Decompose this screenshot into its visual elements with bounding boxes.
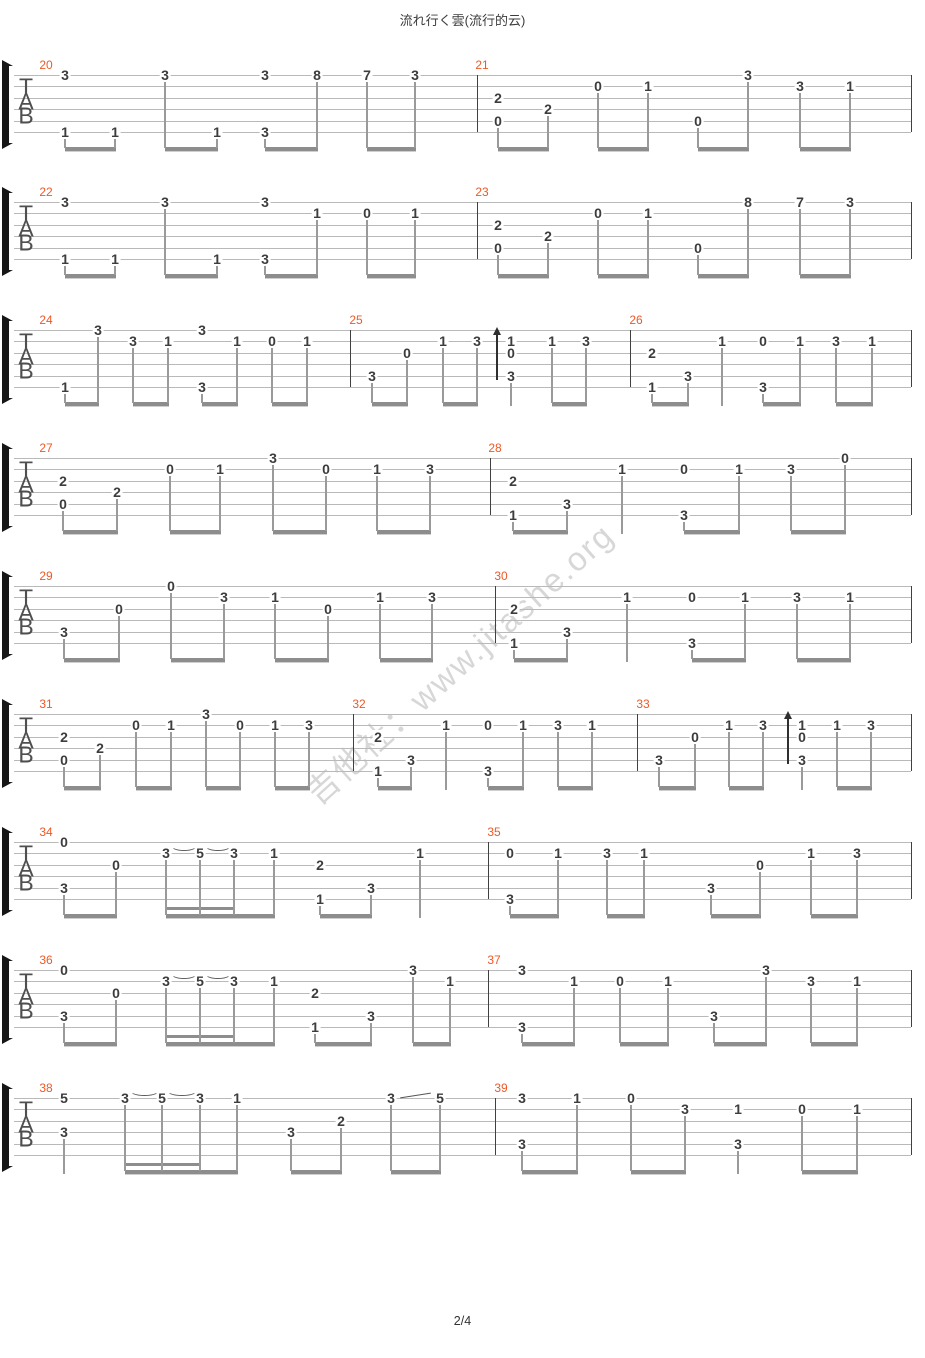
fret-number: 3 bbox=[792, 590, 803, 604]
staff-line bbox=[14, 620, 911, 621]
measure-number: 34 bbox=[39, 825, 52, 839]
fret-number: 1 bbox=[60, 125, 71, 139]
note-stem bbox=[219, 475, 220, 531]
note-stem bbox=[116, 498, 117, 531]
staff-line bbox=[14, 865, 911, 866]
beam bbox=[811, 1042, 859, 1047]
beam bbox=[714, 1042, 768, 1047]
fret-number: 3 bbox=[517, 1091, 528, 1105]
note-stem bbox=[236, 1104, 237, 1172]
strum-arrow-shaft bbox=[787, 718, 788, 764]
fret-number: 3 bbox=[852, 846, 863, 860]
fret-number: 0 bbox=[687, 590, 698, 604]
note-stem bbox=[626, 603, 627, 662]
fret-number: 3 bbox=[866, 718, 877, 732]
measure-number: 21 bbox=[475, 58, 488, 72]
fret-number: 1 bbox=[508, 508, 519, 522]
barline bbox=[911, 330, 912, 387]
note-stem bbox=[621, 475, 622, 534]
fret-number: 3 bbox=[366, 881, 377, 895]
fret-number: 3 bbox=[410, 68, 421, 82]
note-stem bbox=[199, 859, 200, 915]
barline bbox=[495, 586, 496, 643]
fret-number: 1 bbox=[60, 252, 71, 266]
staff-line bbox=[14, 236, 911, 237]
fret-number: 3 bbox=[425, 462, 436, 476]
fret-number: 1 bbox=[509, 636, 520, 650]
fret-number: 1 bbox=[663, 974, 674, 988]
beam bbox=[514, 658, 569, 663]
note-stem bbox=[199, 987, 200, 1043]
fret-number: 2 bbox=[543, 102, 554, 116]
fret-number: 1 bbox=[867, 334, 878, 348]
beam bbox=[265, 147, 319, 152]
fret-number: 3 bbox=[553, 718, 564, 732]
fret-number: 0 bbox=[131, 718, 142, 732]
note-stem bbox=[835, 347, 836, 403]
note-stem bbox=[744, 603, 745, 659]
fret-number: 3 bbox=[268, 451, 279, 465]
fret-number: 3 bbox=[229, 974, 240, 988]
note-stem bbox=[870, 731, 871, 787]
fret-number: 1 bbox=[415, 846, 426, 860]
barline bbox=[488, 970, 489, 1027]
fret-number: 3 bbox=[304, 718, 315, 732]
fret-number: 0 bbox=[505, 846, 516, 860]
measure-number: 20 bbox=[39, 58, 52, 72]
staff-line bbox=[14, 353, 911, 354]
fret-number: 1 bbox=[845, 79, 856, 93]
system-bracket bbox=[2, 66, 9, 143]
staff-line bbox=[14, 714, 911, 715]
fret-number: 3 bbox=[367, 369, 378, 383]
note-stem bbox=[115, 870, 116, 915]
fret-number: 3 bbox=[733, 1137, 744, 1151]
staff-line bbox=[14, 109, 911, 110]
note-stem bbox=[799, 92, 800, 148]
fret-number: 1 bbox=[212, 125, 223, 139]
beam bbox=[692, 658, 747, 663]
beam bbox=[64, 1042, 118, 1047]
measure-number: 27 bbox=[39, 441, 52, 455]
beam bbox=[652, 402, 690, 407]
fret-number: 0 bbox=[483, 718, 494, 732]
measure-number: 33 bbox=[636, 697, 649, 711]
note-stem bbox=[585, 347, 586, 403]
fret-number: 3 bbox=[517, 1137, 528, 1151]
fret-number: 0 bbox=[59, 835, 70, 849]
staff-line bbox=[14, 981, 911, 982]
barline bbox=[911, 714, 912, 771]
fret-number: 3 bbox=[743, 68, 754, 82]
fret-number: 1 bbox=[372, 462, 383, 476]
beam bbox=[378, 786, 413, 791]
beam bbox=[763, 402, 802, 407]
fret-number: 0 bbox=[58, 497, 69, 511]
fret-number: 0 bbox=[690, 730, 701, 744]
fret-number: 1 bbox=[410, 206, 421, 220]
fret-number: 1 bbox=[617, 462, 628, 476]
note-stem bbox=[573, 987, 574, 1043]
fret-number: 3 bbox=[161, 974, 172, 988]
note-stem bbox=[606, 859, 607, 915]
system-bracket bbox=[2, 705, 9, 782]
beam bbox=[65, 274, 117, 279]
note-stem bbox=[697, 126, 698, 148]
note-stem bbox=[713, 1021, 714, 1043]
staff-line bbox=[14, 248, 911, 249]
beam bbox=[377, 530, 432, 535]
note-stem bbox=[476, 347, 477, 403]
fret-number: 0 bbox=[111, 858, 122, 872]
beam bbox=[64, 914, 118, 919]
barline bbox=[911, 842, 912, 899]
fret-number: 1 bbox=[232, 1091, 243, 1105]
tab-clef-letter: B bbox=[18, 872, 33, 895]
measure-number: 36 bbox=[39, 953, 52, 967]
fret-number: 1 bbox=[572, 1091, 583, 1105]
note-stem bbox=[597, 92, 598, 148]
measure-number: 38 bbox=[39, 1081, 52, 1095]
staff-line bbox=[14, 341, 911, 342]
note-stem bbox=[557, 859, 558, 915]
slur-arc bbox=[167, 1086, 197, 1096]
fret-number: 1 bbox=[110, 252, 121, 266]
note-stem bbox=[810, 987, 811, 1043]
note-stem bbox=[274, 731, 275, 787]
fret-number: 1 bbox=[587, 718, 598, 732]
note-stem bbox=[340, 1126, 341, 1171]
beam bbox=[729, 786, 765, 791]
fret-number: 1 bbox=[302, 334, 313, 348]
slur-arc bbox=[171, 969, 197, 979]
staff-line bbox=[14, 737, 911, 738]
fret-number: 2 bbox=[373, 730, 384, 744]
fret-number: 0 bbox=[493, 241, 504, 255]
note-stem bbox=[442, 347, 443, 403]
measure-number: 37 bbox=[487, 953, 500, 967]
fret-number: 1 bbox=[643, 206, 654, 220]
note-stem bbox=[170, 731, 171, 787]
note-stem bbox=[694, 742, 695, 787]
beam bbox=[510, 914, 560, 919]
note-stem bbox=[390, 1104, 391, 1172]
beam bbox=[63, 530, 119, 535]
note-stem bbox=[576, 1104, 577, 1172]
beam bbox=[265, 274, 319, 279]
staff-line bbox=[14, 376, 911, 377]
staff-line bbox=[14, 632, 911, 633]
staff-line bbox=[14, 760, 911, 761]
note-stem bbox=[236, 347, 237, 403]
fret-number: 1 bbox=[553, 846, 564, 860]
fret-number: 3 bbox=[517, 963, 528, 977]
fret-number: 3 bbox=[505, 892, 516, 906]
note-stem bbox=[799, 347, 800, 403]
fret-number: 0 bbox=[797, 1102, 808, 1116]
note-stem bbox=[273, 987, 274, 1043]
measure-number: 28 bbox=[488, 441, 501, 455]
fret-number: 1 bbox=[717, 334, 728, 348]
beam bbox=[800, 147, 852, 152]
staff-line bbox=[14, 842, 911, 843]
fret-number: 0 bbox=[593, 79, 604, 93]
staff-line bbox=[14, 364, 911, 365]
fret-number: 0 bbox=[165, 462, 176, 476]
beam bbox=[64, 786, 102, 791]
fret-number: 3 bbox=[286, 1125, 297, 1139]
note-stem bbox=[366, 219, 367, 275]
fret-number: 3 bbox=[427, 590, 438, 604]
fret-number: 2 bbox=[112, 485, 123, 499]
fret-number: 3 bbox=[366, 1009, 377, 1023]
fret-number: 3 bbox=[260, 195, 271, 209]
staff-line bbox=[14, 481, 911, 482]
fret-number: 1 bbox=[441, 718, 452, 732]
fret-number: 3 bbox=[795, 79, 806, 93]
tab-clef-letter: B bbox=[18, 1000, 33, 1023]
note-stem bbox=[63, 1021, 64, 1043]
beam bbox=[166, 914, 276, 919]
note-stem bbox=[99, 754, 100, 787]
fret-number: 3 bbox=[786, 462, 797, 476]
beam bbox=[522, 1170, 579, 1175]
note-stem bbox=[810, 859, 811, 915]
note-stem bbox=[164, 208, 165, 276]
beam bbox=[275, 786, 311, 791]
beam bbox=[711, 914, 762, 919]
barline bbox=[911, 458, 912, 515]
note-stem bbox=[161, 1104, 162, 1172]
note-stem bbox=[849, 603, 850, 659]
fret-number: 2 bbox=[493, 218, 504, 232]
note-stem bbox=[737, 1149, 738, 1174]
fret-number: 0 bbox=[615, 974, 626, 988]
fret-number: 0 bbox=[166, 579, 177, 593]
note-stem bbox=[115, 998, 116, 1043]
staff-line bbox=[14, 1132, 911, 1133]
staff-line bbox=[14, 876, 911, 877]
barline bbox=[477, 75, 478, 132]
note-stem bbox=[308, 731, 309, 787]
beam bbox=[165, 274, 219, 279]
beam bbox=[125, 1170, 239, 1175]
fret-number: 3 bbox=[687, 636, 698, 650]
beam bbox=[170, 530, 222, 535]
fret-number: 1 bbox=[845, 590, 856, 604]
fret-number: 3 bbox=[160, 195, 171, 209]
fret-number: 0 bbox=[235, 718, 246, 732]
staff-line bbox=[14, 609, 911, 610]
tab-clef-letter: B bbox=[18, 744, 33, 767]
fret-number: 2 bbox=[647, 346, 658, 360]
note-stem bbox=[316, 81, 317, 149]
barline bbox=[911, 202, 912, 259]
note-stem bbox=[762, 731, 763, 787]
fret-number: 3 bbox=[219, 590, 230, 604]
note-stem bbox=[290, 1138, 291, 1171]
barline bbox=[630, 330, 631, 387]
fret-number: 5 bbox=[195, 846, 206, 860]
fret-number: 1 bbox=[569, 974, 580, 988]
fret-number: 3 bbox=[706, 881, 717, 895]
fret-number: 1 bbox=[269, 974, 280, 988]
fret-number: 3 bbox=[472, 334, 483, 348]
beam bbox=[837, 786, 873, 791]
fret-number: 3 bbox=[161, 846, 172, 860]
beam bbox=[165, 147, 219, 152]
note-stem bbox=[796, 603, 797, 659]
fret-number: 1 bbox=[60, 380, 71, 394]
fret-number: 2 bbox=[493, 91, 504, 105]
measure-number: 32 bbox=[352, 697, 365, 711]
note-stem bbox=[97, 336, 98, 404]
fret-number: 3 bbox=[797, 753, 808, 767]
beam bbox=[607, 914, 646, 919]
barline bbox=[353, 714, 354, 771]
fret-number: 3 bbox=[59, 1009, 70, 1023]
fret-number: 3 bbox=[229, 846, 240, 860]
fret-number: 1 bbox=[212, 252, 223, 266]
fret-number: 1 bbox=[110, 125, 121, 139]
beam bbox=[206, 786, 242, 791]
fret-number: 3 bbox=[120, 1091, 131, 1105]
fret-number: 1 bbox=[215, 462, 226, 476]
staff-line bbox=[14, 121, 911, 122]
fret-number: 3 bbox=[128, 334, 139, 348]
note-stem bbox=[316, 219, 317, 275]
note-stem bbox=[327, 614, 328, 659]
note-stem bbox=[710, 893, 711, 915]
fret-number: 3 bbox=[683, 369, 694, 383]
fret-number: 0 bbox=[758, 334, 769, 348]
note-stem bbox=[667, 987, 668, 1043]
note-stem bbox=[272, 464, 273, 532]
fret-number: 3 bbox=[59, 1125, 70, 1139]
note-stem bbox=[233, 859, 234, 915]
staff-line bbox=[14, 725, 911, 726]
beam bbox=[659, 786, 697, 791]
fret-number: 1 bbox=[310, 1020, 321, 1034]
fret-number: 3 bbox=[60, 195, 71, 209]
note-stem bbox=[801, 1115, 802, 1171]
fret-number: 3 bbox=[59, 881, 70, 895]
fret-number: 7 bbox=[362, 68, 373, 82]
note-stem bbox=[684, 1115, 685, 1171]
note-stem bbox=[687, 381, 688, 403]
fret-number: 2 bbox=[95, 741, 106, 755]
staff-line bbox=[14, 1004, 911, 1005]
note-stem bbox=[205, 720, 206, 788]
fret-number: 3 bbox=[201, 707, 212, 721]
fret-number: 3 bbox=[60, 68, 71, 82]
measure-number: 31 bbox=[39, 697, 52, 711]
fret-number: 0 bbox=[506, 346, 517, 360]
note-stem bbox=[124, 1104, 125, 1172]
tab-clef-letter: B bbox=[18, 105, 33, 128]
staff-line bbox=[14, 86, 911, 87]
note-stem bbox=[647, 92, 648, 148]
fret-number: 0 bbox=[693, 114, 704, 128]
fret-number: 3 bbox=[831, 334, 842, 348]
beam bbox=[522, 1042, 576, 1047]
beam bbox=[802, 1170, 859, 1175]
staff-line bbox=[14, 469, 911, 470]
note-stem bbox=[728, 731, 729, 787]
fret-number: 0 bbox=[626, 1091, 637, 1105]
fret-number: 1 bbox=[315, 892, 326, 906]
measure-number: 39 bbox=[494, 1081, 507, 1095]
note-stem bbox=[566, 509, 567, 531]
fret-number: 0 bbox=[755, 858, 766, 872]
note-stem bbox=[274, 603, 275, 659]
staff-line bbox=[14, 98, 911, 99]
beam bbox=[513, 530, 569, 535]
staff-line bbox=[14, 132, 911, 133]
staff-line bbox=[14, 492, 911, 493]
fret-number: 1 bbox=[622, 590, 633, 604]
fret-number: 3 bbox=[197, 323, 208, 337]
staff-line bbox=[14, 853, 911, 854]
note-stem bbox=[591, 731, 592, 787]
staff-line bbox=[14, 259, 911, 260]
beam bbox=[171, 658, 226, 663]
beam bbox=[64, 658, 121, 663]
staff-line bbox=[14, 504, 911, 505]
sheet-title: 流れ行く雲(流行的云) bbox=[0, 10, 925, 29]
beam bbox=[272, 402, 309, 407]
fret-number: 7 bbox=[795, 195, 806, 209]
staff-line bbox=[14, 225, 911, 226]
fret-number: 3 bbox=[806, 974, 817, 988]
fret-number: 0 bbox=[593, 206, 604, 220]
fret-number: 1 bbox=[373, 764, 384, 778]
barline bbox=[911, 75, 912, 132]
fret-number: 3 bbox=[260, 125, 271, 139]
fret-number: 3 bbox=[406, 753, 417, 767]
fret-number: 3 bbox=[59, 625, 70, 639]
fret-number: 1 bbox=[445, 974, 456, 988]
system-bracket bbox=[2, 1089, 9, 1166]
note-stem bbox=[132, 347, 133, 403]
measure-number: 23 bbox=[475, 185, 488, 199]
fret-number: 3 bbox=[506, 369, 517, 383]
fret-number: 1 bbox=[643, 79, 654, 93]
fret-number: 3 bbox=[602, 846, 613, 860]
fret-number: 1 bbox=[832, 718, 843, 732]
beam bbox=[552, 402, 588, 407]
fret-number: 1 bbox=[163, 334, 174, 348]
staff-line bbox=[14, 993, 911, 994]
note-stem bbox=[366, 81, 367, 149]
fret-number: 0 bbox=[493, 114, 504, 128]
fret-number: 1 bbox=[269, 846, 280, 860]
fret-number: 3 bbox=[483, 764, 494, 778]
note-stem bbox=[414, 219, 415, 275]
note-stem bbox=[414, 81, 415, 149]
note-stem bbox=[273, 859, 274, 915]
fret-number: 2 bbox=[543, 229, 554, 243]
beam bbox=[273, 530, 328, 535]
beam bbox=[811, 914, 859, 919]
note-stem bbox=[431, 603, 432, 659]
note-stem bbox=[497, 253, 498, 275]
beam bbox=[620, 1042, 670, 1047]
note-stem bbox=[376, 475, 377, 531]
fret-number: 1 bbox=[270, 590, 281, 604]
beam bbox=[320, 914, 373, 919]
fret-number: 0 bbox=[693, 241, 704, 255]
